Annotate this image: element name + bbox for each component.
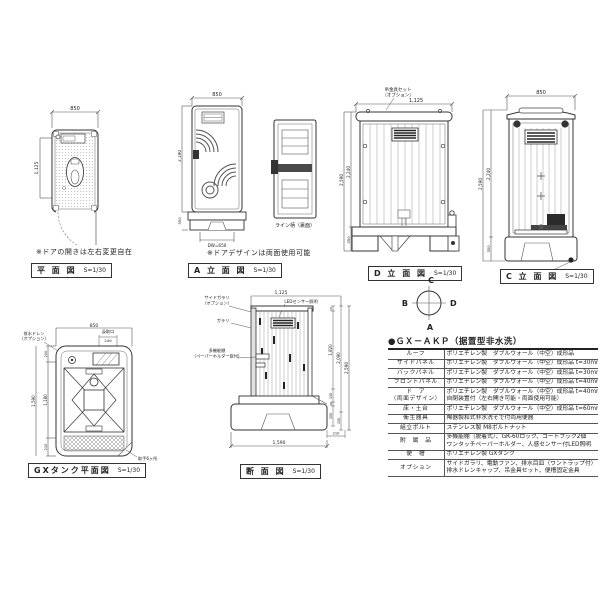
spec-item-value: 多機能棚（脱着式）、GR-60ロック、コートフック2個ワンタッチペーパーホルダー…	[444, 433, 598, 450]
c-dim-total	[483, 110, 507, 261]
compass-c: C	[428, 276, 434, 285]
section-dim-base-offset-label: 210	[333, 432, 341, 436]
plan-dim-width-label: 850	[70, 106, 80, 112]
spec-item-value: ポリエチレン製 ダブルウォール（中空）成形品	[444, 350, 598, 359]
tank-dim-total-label: 1,590	[31, 395, 36, 407]
spec-table: ●ＧＸ－ＡＫＰ（据置型非水洗） ルーフポリエチレン製 ダブルウォール（中空）成形…	[388, 335, 598, 477]
tank-suction-port	[93, 353, 119, 365]
c-drain-outlet	[568, 257, 573, 262]
a-dim-height-label: 2,190	[178, 150, 182, 162]
plan-title: 平 面 図	[37, 265, 77, 276]
c-dim-body-label: 2,240	[486, 168, 491, 180]
tank-port-label: 汲取口	[102, 328, 115, 335]
d-elevation-drawing: 吊金具セット （オプション） 1,125	[336, 84, 471, 264]
spec-item-name: 衛生器具	[388, 414, 444, 424]
spec-item-name: オプション	[388, 460, 444, 477]
a-elevation-drawing: 850 2,190 350 DW=650	[178, 90, 333, 255]
tank-plan-drawing: 850 排水ドレン （オプション） 汲取口 240	[20, 322, 170, 464]
plan-note: ※ドアの開きは左右変更自在	[36, 247, 132, 257]
compass-d: D	[450, 299, 457, 308]
spec-item-name: ルーフ	[388, 350, 444, 359]
section-louver-label: ガラリ	[217, 317, 230, 324]
spec-row: 衛生器具陶器製和式非水洗そで付両用便器	[388, 414, 598, 424]
spec-item-name: フロントパネル	[388, 378, 444, 388]
d-dim-width	[354, 102, 454, 112]
d-base	[352, 227, 456, 251]
section-dim-200-label: 200	[329, 413, 333, 419]
tank-drain-plug	[69, 357, 76, 364]
section-shelf-label-line2: （ペーパーホルダー取付）	[193, 353, 242, 360]
plan-title-box: 平 面 図 S=1/30	[31, 263, 112, 278]
section-shelf	[256, 354, 269, 367]
tank-dim-width-label: 850	[90, 323, 99, 329]
section-dim-130-label: 130	[329, 393, 333, 399]
section-dim-chain-inner	[331, 306, 335, 426]
section-dim-roof-label: 50	[329, 307, 333, 311]
spec-table-rows: ルーフポリエチレン製 ダブルウォール（中空）成形品サイドパネルポリエチレン製 ダ…	[388, 350, 598, 477]
spec-item-name: サイドパネル	[388, 359, 444, 369]
c-louver	[525, 130, 557, 144]
tank-scale: S=1/30	[118, 467, 140, 474]
spec-item-name: 便 槽	[388, 450, 444, 460]
section-dim-chain-mid	[339, 306, 343, 430]
section-dim-150-label: 150	[337, 418, 341, 424]
spec-row: 便 槽ポリエチレン製 GXタンク	[388, 450, 598, 460]
d-hook-label-line1: 吊金具セット	[385, 86, 412, 93]
spec-table-grid: ルーフポリエチレン製 ダブルウォール（中空）成形品サイドパネルポリエチレン製 ダ…	[388, 350, 598, 477]
tank-dim-mid-label: 1,180	[43, 394, 48, 406]
plan-dim-width	[50, 110, 100, 128]
spec-row: バックパネルポリエチレン製 ダブルウォール（中空）成形品 t=30mm	[388, 369, 598, 379]
spec-item-value: ポリエチレン製 ダブルウォール（中空）成形品 t=40mm自閉装置付（左右開き可…	[444, 388, 598, 405]
section-base	[231, 396, 327, 430]
a-dim-width-label: 850	[212, 92, 222, 98]
compass-b: B	[402, 299, 408, 308]
spec-item-value: 陶器製和式非水洗そで付両用便器	[444, 414, 598, 424]
spec-item-name: バックパネル	[388, 369, 444, 379]
section-dim-depth-label: 1,125	[275, 290, 288, 296]
section-dim-interior-label: 1,820	[328, 344, 333, 356]
spec-item-value: ポリエチレン製 ダブルウォール（中空）成形品 t=30mm	[444, 359, 598, 369]
a-rear-door-panel	[271, 120, 316, 218]
d-louver	[392, 128, 418, 141]
tank-hatched-strip	[64, 436, 124, 450]
c-roof	[507, 108, 575, 119]
section-dim-total-label: 2,590	[344, 362, 349, 374]
spec-item-value: ステンレス製 M8ボルトナット	[444, 424, 598, 434]
spec-item-name: ド ア（両面デザイン）	[388, 388, 444, 405]
spec-item-value: ポリエチレン製 ダブルウォール（中空）成形品 t=40mm	[444, 378, 598, 388]
c-base	[505, 237, 577, 263]
a-body	[192, 106, 242, 212]
tank-title: GXタンク平面図	[34, 465, 111, 476]
tank-dim-port-label: 240	[104, 338, 112, 343]
c-elevation-drawing: 850	[473, 84, 600, 282]
section-sidelouver-leader	[229, 306, 251, 312]
spec-table-title: ●ＧＸ－ＡＫＰ（据置型非水洗）	[388, 335, 598, 350]
section-scale: S=1/30	[293, 468, 315, 475]
a-dim-height	[182, 106, 192, 230]
d-dim-width-label: 1,125	[409, 98, 423, 104]
section-drawing: 1,125 LEDセンサー照明 サイドガラリ （オプション）	[193, 286, 378, 464]
section-dim-base-depth-label: 1,590	[273, 440, 286, 446]
section-sidelouver-label-line2: （オプション）	[202, 301, 231, 307]
d-dim-base-label: 350	[346, 236, 351, 244]
spec-row: フロントパネルポリエチレン製 ダブルウォール（中空）成形品 t=40mm	[388, 378, 598, 388]
c-dim-total-label: 2,590	[478, 178, 483, 190]
section-louver-leader	[231, 323, 251, 328]
a-note: ※ドアデザインは両面使用可能	[207, 248, 311, 258]
spec-row: 床・土台ポリエチレン製 ダブルウォール（中空）成形品 t=60mm	[388, 405, 598, 415]
a-title: A 立 面 図	[194, 265, 247, 276]
plan-door-swing	[56, 211, 96, 245]
section-title-box: 断 面 図 S=1/30	[240, 464, 321, 479]
a-scale: S=1/30	[254, 267, 276, 274]
section-dim-40-label: 40	[329, 402, 333, 406]
c-dim-width-label: 850	[536, 90, 546, 96]
tank-dim-width	[56, 328, 132, 346]
a-dim-door	[200, 232, 234, 242]
spec-row: ルーフポリエチレン製 ダブルウォール（中空）成形品	[388, 350, 598, 359]
compass-a: A	[427, 323, 434, 332]
plan-dim-depth	[40, 138, 52, 198]
c-title-box: C 立 面 図 S=1/30	[500, 269, 594, 284]
plan-dim-depth-label: 1,125	[34, 161, 40, 174]
section-title: 断 面 図	[246, 466, 286, 477]
plan-scale: S=1/30	[84, 267, 106, 274]
spec-item-value: ポリエチレン製 ダブルウォール（中空）成形品 t=30mm	[444, 369, 598, 379]
tank-handle-label: 取手6ヶ所	[138, 455, 157, 462]
spec-row: 組立ボルトステンレス製 M8ボルトナット	[388, 424, 598, 434]
d-roof	[356, 109, 452, 121]
plan-view-drawing: 850 1,125	[28, 100, 168, 245]
spec-row: ド ア（両面デザイン）ポリエチレン製 ダブルウォール（中空）成形品 t=40mm…	[388, 388, 598, 405]
tank-dim-bottom-label: 210	[44, 443, 48, 451]
spec-row: サイドパネルポリエチレン製 ダブルウォール（中空）成形品 t=30mm	[388, 359, 598, 369]
spec-row: オプションサイドガラリ、電動ファン、排水目皿（ワントラップ付）排水ドレンキャップ…	[388, 460, 598, 477]
c-dim-body-chain	[489, 110, 493, 261]
d-dim-body-label: 2,240	[346, 166, 351, 178]
section-led-label: LEDセンサー照明	[284, 299, 317, 305]
a-base	[188, 212, 246, 230]
a-dim-base-label: 350	[178, 217, 182, 225]
spec-item-value: ポリエチレン製 ダブルウォール（中空）成形品 t=60mm	[444, 405, 598, 415]
d-dim-total-label: 2,590	[339, 174, 344, 186]
a-panel-label: ライン柄（裏面）	[275, 222, 315, 229]
drawing-sheet: 850 1,125 ※ドアの開きは左右変更自	[0, 0, 600, 600]
spec-row: 附 属 品多機能棚（脱着式）、GR-60ロック、コートフック2個ワンタッチペーパ…	[388, 433, 598, 450]
tank-title-box: GXタンク平面図 S=1/30	[28, 463, 146, 478]
c-dim-width	[505, 94, 577, 110]
tank-dim-top-label: 200	[44, 350, 48, 358]
spec-item-value: サイドガラリ、電動ファン、排水目皿（ワントラップ付）排水ドレンキャップ、吊金具セ…	[444, 460, 598, 477]
section-dim-opening-label: 2,090	[336, 352, 341, 364]
spec-item-name: 組立ボルト	[388, 424, 444, 434]
spec-item-name: 附 属 品	[388, 433, 444, 450]
tank-drain-label-line2: （オプション）	[20, 336, 49, 342]
orientation-compass: C B D A	[393, 272, 465, 332]
c-title: C 立 面 図	[506, 271, 558, 282]
a-title-box: A 立 面 図 S=1/30	[188, 263, 282, 278]
a-door-latch	[193, 150, 199, 159]
c-scale: S=1/30	[565, 273, 587, 280]
spec-item-name: 床・土台	[388, 405, 444, 415]
section-led-light	[271, 318, 295, 328]
spec-item-value: ポリエチレン製 GXタンク	[444, 450, 598, 460]
c-dim-base-label: 350	[486, 245, 491, 253]
